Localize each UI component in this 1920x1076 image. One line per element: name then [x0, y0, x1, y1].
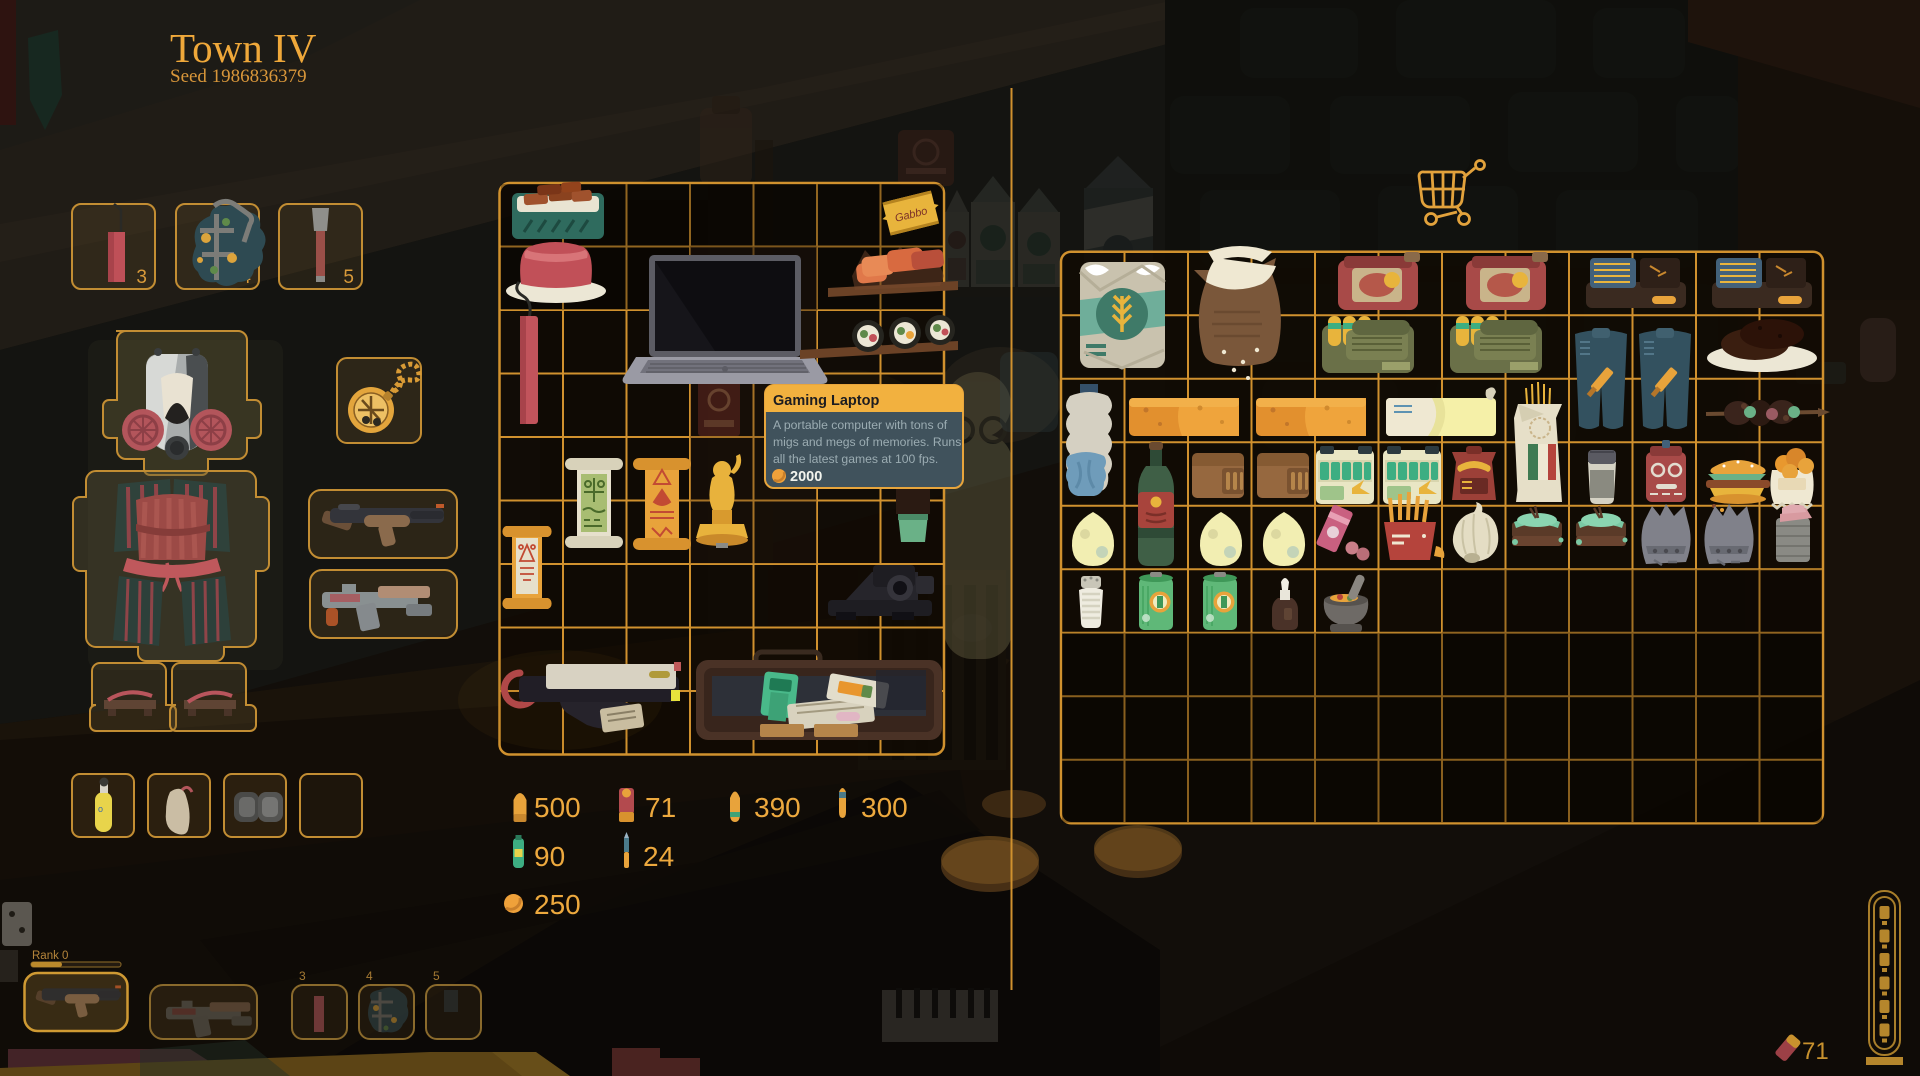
svg-text:4: 4 [366, 969, 373, 983]
svg-text:71: 71 [645, 792, 676, 823]
svg-text:500: 500 [534, 792, 581, 823]
svg-text:24: 24 [643, 841, 674, 872]
svg-text:250: 250 [534, 889, 581, 920]
svg-text:Seed 1986836379: Seed 1986836379 [170, 66, 307, 87]
svg-text:all the latest games at 100 fp: all the latest games at 100 fps. [773, 452, 938, 466]
svg-text:3: 3 [136, 267, 147, 288]
svg-text:A portable computer with tons: A portable computer with tons of [773, 418, 948, 432]
svg-text:Rank 0: Rank 0 [32, 950, 68, 962]
svg-text:390: 390 [754, 792, 801, 823]
svg-text:Town IV: Town IV [170, 25, 317, 71]
svg-text:300: 300 [861, 792, 908, 823]
svg-text:Gaming Laptop: Gaming Laptop [773, 393, 879, 409]
svg-text:5: 5 [433, 969, 440, 983]
svg-text:2000: 2000 [790, 469, 822, 485]
svg-text:90: 90 [534, 841, 565, 872]
svg-text:3: 3 [299, 969, 306, 983]
svg-text:5: 5 [343, 267, 354, 288]
svg-text:migs and megs of memories. Run: migs and megs of memories. Runs [773, 435, 961, 449]
svg-text:o: o [98, 804, 103, 814]
svg-text:71: 71 [1802, 1038, 1829, 1065]
